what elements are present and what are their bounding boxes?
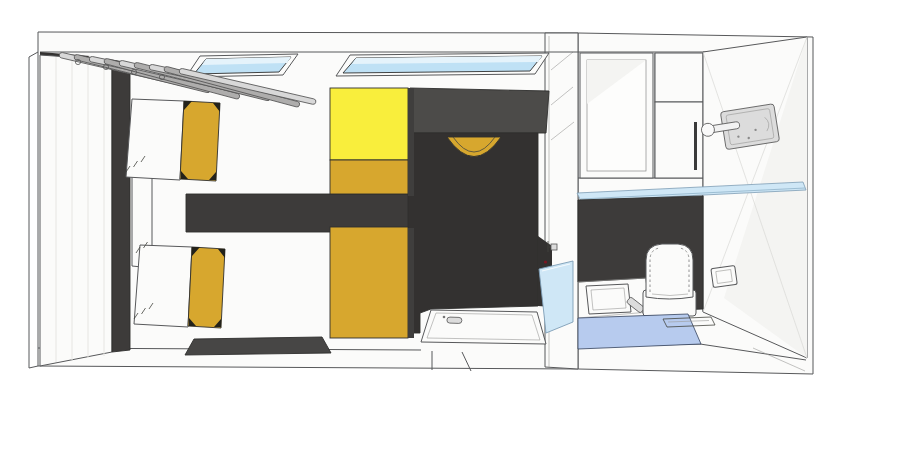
bed-bottom [134, 242, 225, 328]
dark-floor [408, 133, 538, 333]
dark-runner-band [186, 194, 410, 232]
bathroom [577, 37, 807, 358]
storage-block [410, 88, 549, 133]
cabinet-upper-door [655, 53, 703, 102]
bunk-upper-gold [330, 160, 408, 194]
bath-cabinet-left [580, 53, 653, 178]
toilet [643, 244, 696, 316]
bunk-upper-edge [408, 88, 414, 196]
floorplan-render [0, 0, 900, 450]
wardrobe [40, 55, 130, 366]
bunk-upper [330, 88, 414, 196]
wardrobe-front [40, 55, 112, 366]
wardrobe-side-shadow [112, 60, 130, 352]
mattress [126, 99, 184, 180]
bunk-upper-yellow [330, 88, 408, 160]
toilet-lid [646, 244, 693, 299]
rug [185, 337, 331, 355]
skylight-right [336, 53, 549, 76]
blanket-gold [180, 101, 220, 181]
bed-top [126, 99, 220, 181]
flush-plate-frame [711, 265, 737, 287]
bunk-lower-gold [330, 227, 408, 338]
valve-box [551, 244, 557, 250]
shower-tray [421, 310, 546, 344]
valve-red-dot [544, 260, 547, 263]
bunk-lower-edge [408, 228, 414, 338]
drain-screw [443, 316, 446, 319]
bunk-lower [330, 227, 414, 338]
right-wall [703, 37, 807, 358]
bath-mat [578, 314, 701, 349]
flush-plate [711, 265, 737, 287]
shower-drain [447, 317, 462, 324]
bath-cabinet-right [655, 53, 703, 178]
cabinet-handle [694, 122, 697, 170]
blanket-gold [188, 247, 225, 328]
render-canvas [0, 0, 900, 450]
mattress [134, 245, 192, 327]
